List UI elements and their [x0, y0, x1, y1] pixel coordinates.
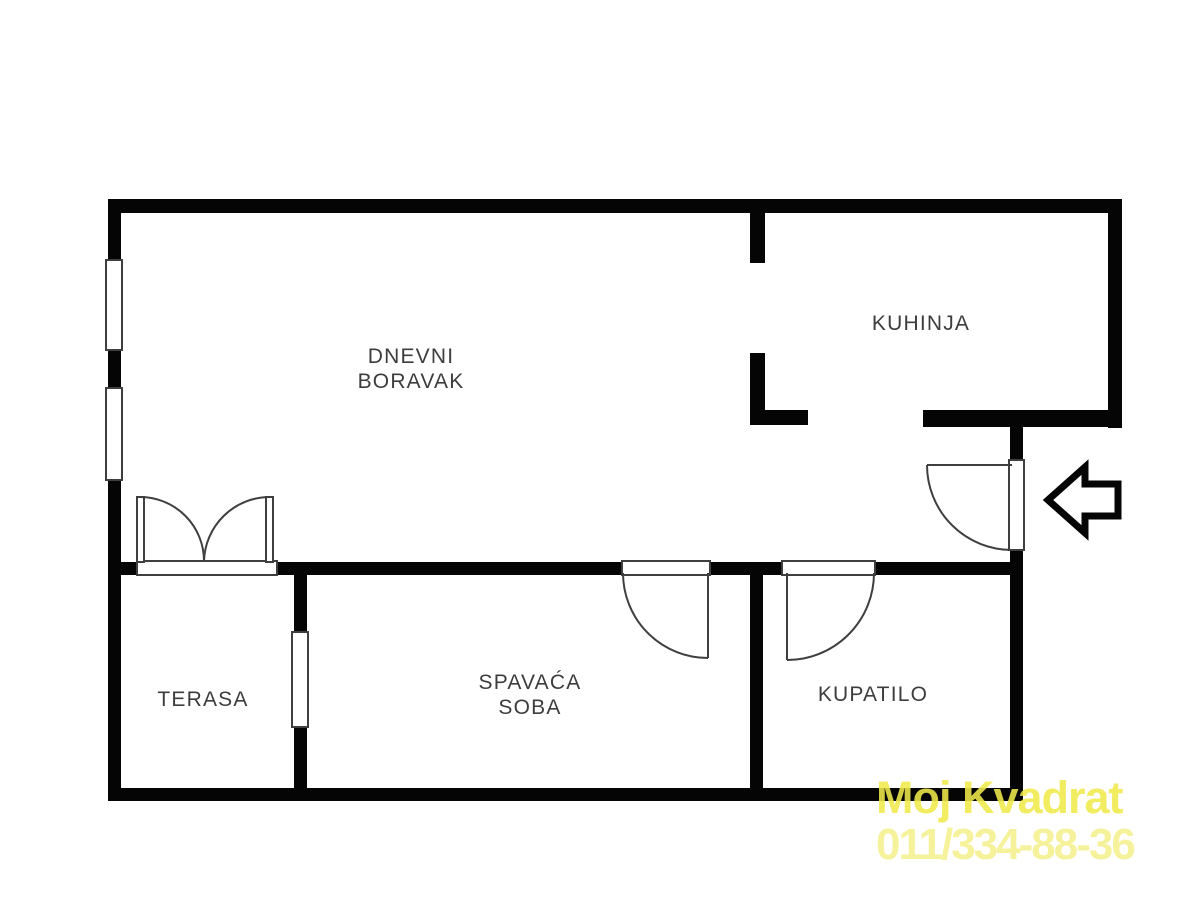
bedroom-door	[623, 573, 708, 658]
balcony-double-door	[137, 497, 273, 562]
entrance-door	[927, 465, 1012, 550]
entrance-door-arc	[927, 465, 1012, 550]
balcony-door-left-leaf	[137, 497, 144, 562]
bedroom-door-arc	[623, 573, 708, 658]
door-swing-layer	[0, 0, 1200, 897]
balcony-door-left-arc	[140, 497, 204, 561]
bathroom-door-arc	[787, 573, 874, 660]
floor-plan: DNEVNI BORAVAK KUHINJA TERASA SPAVAĆA SO…	[0, 0, 1200, 897]
balcony-door-right-leaf	[266, 497, 273, 562]
left-arrow-icon	[1048, 467, 1118, 533]
bathroom-door	[787, 573, 874, 660]
watermark-phone-number: 011/334-88-36	[876, 820, 1134, 870]
balcony-door-right-arc	[204, 497, 270, 561]
watermark-company-name: Moj Kvadrat	[876, 772, 1123, 824]
